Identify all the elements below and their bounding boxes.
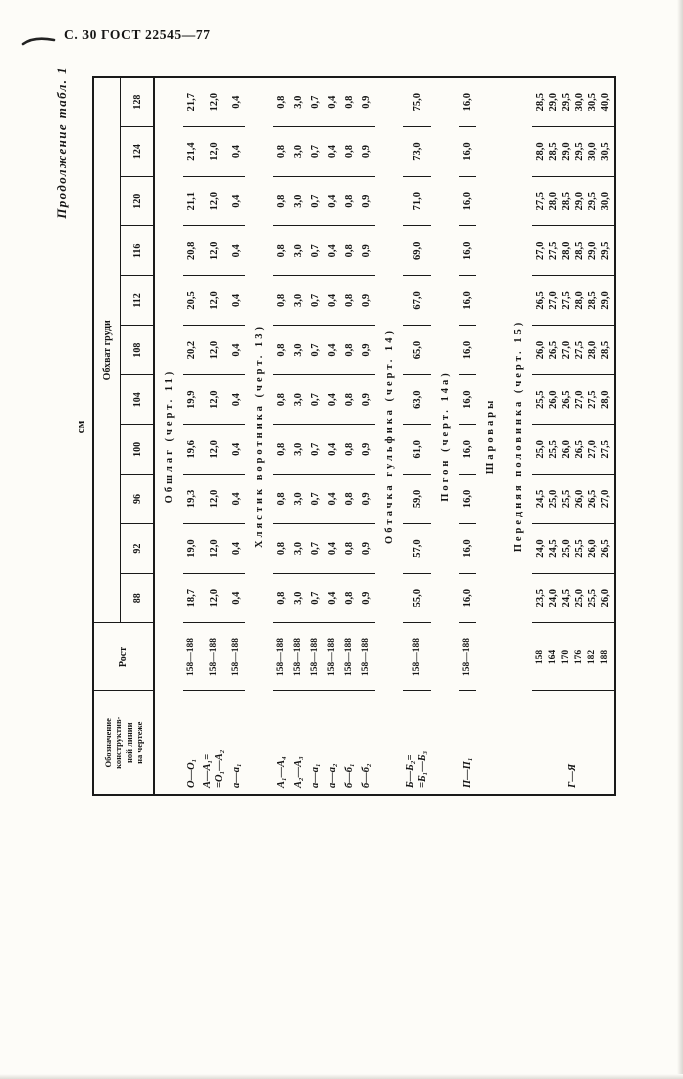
text-line: 0,9: [360, 276, 373, 325]
text-line: 96: [132, 475, 143, 524]
text-line: 0,7: [309, 127, 322, 176]
text-line: Передняя половинка (черт. 15): [513, 78, 524, 794]
text-line: 12,0: [208, 227, 221, 276]
text-line: 27,5: [560, 276, 573, 325]
value-cell: 12,0: [200, 474, 228, 524]
text-line: 3,0: [292, 524, 305, 573]
text-line: 16,0: [461, 326, 474, 375]
text-line: 128: [132, 78, 143, 126]
text-line: 0,9: [360, 375, 373, 424]
section-title-row: Передняя половинка (черт. 15): [504, 77, 532, 795]
text-line: 3,0: [292, 326, 305, 375]
text-line: 3,0: [292, 177, 305, 226]
value-cell: 0,8: [273, 573, 290, 623]
text-line: 0,4: [230, 574, 243, 623]
value-cell: 71,0: [403, 176, 431, 226]
designation-cell: б—б₁: [341, 691, 358, 795]
text-line: 30,0: [573, 78, 586, 126]
page-header: С. 30 ГОСТ 22545—77: [64, 27, 211, 43]
text-line: 158: [534, 624, 547, 691]
value-cell: 3,0: [290, 127, 307, 177]
value-cell: 73,0: [403, 127, 431, 177]
text-line: 29,0: [560, 127, 573, 176]
value-cell: 0,4: [324, 176, 341, 226]
value-cell: 69,0: [403, 226, 431, 276]
section-title-row: Обтачка гульфика (черт. 14): [375, 77, 403, 795]
designation-cell: А₂—А₃: [290, 691, 307, 795]
text-line: 158—188: [230, 624, 243, 691]
section-title: Передняя половинка (черт. 15): [504, 77, 532, 795]
text-line: 29,0: [547, 78, 560, 126]
text-line: 25,0: [560, 524, 573, 573]
text-line: 23,5: [534, 574, 547, 623]
value-cell: 3,0: [290, 573, 307, 623]
value-cell: 24,024,525,025,526,026,5: [532, 524, 615, 574]
table-row: а—а₂158—1880,40,40,40,40,40,40,40,40,40,…: [324, 77, 341, 795]
value-cell: 0,7: [307, 524, 324, 574]
text-line: а—а₁: [231, 692, 243, 789]
text-line: 0,8: [343, 78, 356, 126]
rost-cell: 158—188: [228, 623, 245, 691]
table-row: б—б₂158—1880,90,90,90,90,90,90,90,90,90,…: [358, 77, 375, 795]
text-line: 26,0: [560, 425, 573, 474]
text-line: 0,8: [275, 375, 288, 424]
text-line: 0,8: [275, 78, 288, 126]
value-cell: 0,7: [307, 474, 324, 524]
value-cell: 19,0: [183, 524, 200, 574]
text-line: 3,0: [292, 78, 305, 126]
text-line: 0,7: [309, 177, 322, 226]
value-cell: 20,2: [183, 325, 200, 375]
text-line: 0,7: [309, 375, 322, 424]
text-line: 12,0: [208, 574, 221, 623]
text-line: 25,0: [547, 475, 560, 524]
text-line: 12,0: [208, 127, 221, 176]
value-cell: 3,0: [290, 176, 307, 226]
text-line: Шаровары: [485, 78, 496, 794]
text-line: 0,4: [230, 524, 243, 573]
text-line: Г—Я: [567, 692, 579, 789]
text-line: 0,4: [230, 127, 243, 176]
rost-cell: 158164170176182188: [532, 623, 615, 691]
value-cell: 0,8: [341, 573, 358, 623]
text-line: 20,5: [185, 276, 198, 325]
value-cell: 19,3: [183, 474, 200, 524]
text-line: 0,4: [326, 177, 339, 226]
value-cell: 67,0: [403, 276, 431, 326]
text-line: 28,0: [573, 276, 586, 325]
text-line: 104: [132, 375, 143, 424]
designation-cell: а—а₂: [324, 691, 341, 795]
text-line: 29,5: [573, 127, 586, 176]
text-line: 25,5: [586, 574, 599, 623]
text-line: 63,0: [411, 375, 424, 424]
section-title-row: Обшлаг (черт. 11): [154, 77, 183, 795]
text-line: 29,0: [573, 177, 586, 226]
text-line: 158—188: [185, 624, 198, 691]
table-row: А₂—А₃158—1883,03,03,03,03,03,03,03,03,03…: [290, 77, 307, 795]
designation-cell: а—а₁: [307, 691, 324, 795]
section-title: Хлястик воротника (черт. 13): [245, 77, 273, 795]
text-line: 0,9: [360, 326, 373, 375]
text-line: 0,4: [230, 177, 243, 226]
text-line: 0,8: [343, 475, 356, 524]
value-cell: 0,8: [273, 226, 290, 276]
text-line: конструктив-: [113, 692, 124, 795]
value-cell: 23,524,024,525,025,526,0: [532, 573, 615, 623]
value-cell: 12,0: [200, 524, 228, 574]
table-row: а—а₁158—1880,70,70,70,70,70,70,70,70,70,…: [307, 77, 324, 795]
text-line: 12,0: [208, 425, 221, 474]
text-line: 0,9: [360, 425, 373, 474]
text-line: 0,8: [275, 574, 288, 623]
chest-girth-span-header: Обхват груди: [93, 77, 121, 623]
value-cell: 16,0: [459, 524, 476, 574]
value-cell: 61,0: [403, 425, 431, 475]
value-cell: 0,8: [341, 127, 358, 177]
text-line: 26,0: [534, 326, 547, 375]
rost-cell: 158—188: [290, 623, 307, 691]
text-line: 28,0: [586, 326, 599, 375]
size-column-header: 120: [121, 176, 155, 226]
text-line: 26,0: [599, 574, 612, 623]
text-line: 16,0: [461, 524, 474, 573]
text-line: 12,0: [208, 375, 221, 424]
text-line: 0,8: [343, 574, 356, 623]
text-line: 0,8: [275, 276, 288, 325]
text-line: 0,8: [275, 425, 288, 474]
value-cell: 16,0: [459, 276, 476, 326]
value-cell: 0,4: [324, 573, 341, 623]
text-line: 158—188: [461, 624, 474, 691]
size-column-header: 88: [121, 573, 155, 623]
text-line: 16,0: [461, 78, 474, 126]
text-line: 27,0: [599, 475, 612, 524]
rost-cell: 158—188: [324, 623, 341, 691]
text-line: 28,5: [534, 78, 547, 126]
text-line: 0,9: [360, 78, 373, 126]
text-line: Хлястик воротника (черт. 13): [254, 78, 265, 794]
text-line: 16,0: [461, 425, 474, 474]
scan-edge-shadow: [0, 1074, 683, 1079]
text-line: 164: [547, 624, 560, 691]
text-line: 69,0: [411, 227, 424, 276]
value-cell: 0,7: [307, 226, 324, 276]
rost-cell: 158—188: [273, 623, 290, 691]
text-line: 16,0: [461, 227, 474, 276]
text-line: 16,0: [461, 475, 474, 524]
value-cell: 0,8: [341, 77, 358, 127]
text-line: 158—188: [309, 624, 322, 691]
value-cell: 28,028,529,029,530,030,5: [532, 127, 615, 177]
table-row: а—а₁158—1880,40,40,40,40,40,40,40,40,40,…: [228, 77, 245, 795]
text-line: 0,4: [230, 326, 243, 375]
size-column-header: 112: [121, 276, 155, 326]
text-line: =Б₁—Б₃: [417, 692, 429, 789]
text-line: 0,4: [230, 475, 243, 524]
value-cell: 0,9: [358, 573, 375, 623]
value-cell: 16,0: [459, 474, 476, 524]
text-line: 120: [132, 177, 143, 226]
text-line: 0,4: [326, 326, 339, 375]
text-line: 73,0: [411, 127, 424, 176]
text-line: 19,9: [185, 375, 198, 424]
value-cell: 0,9: [358, 127, 375, 177]
text-line: 25,0: [534, 425, 547, 474]
text-line: 0,8: [275, 524, 288, 573]
designation-cell: Б—Б₂==Б₁—Б₃: [403, 691, 431, 795]
value-cell: 0,4: [324, 226, 341, 276]
text-line: 158—188: [326, 624, 339, 691]
value-cell: 16,0: [459, 226, 476, 276]
text-line: 12,0: [208, 276, 221, 325]
text-line: 112: [132, 276, 143, 325]
text-line: 21,1: [185, 177, 198, 226]
value-cell: 55,0: [403, 573, 431, 623]
text-line: 3,0: [292, 475, 305, 524]
text-line: 75,0: [411, 78, 424, 126]
rost-cell: 158—188: [307, 623, 324, 691]
designation-cell: б—б₂: [358, 691, 375, 795]
text-line: на чертеже: [134, 692, 145, 795]
value-cell: 0,4: [228, 77, 245, 127]
text-line: 27,5: [534, 177, 547, 226]
text-line: 28,5: [586, 276, 599, 325]
rost-cell: 158—188: [200, 623, 228, 691]
value-cell: 0,4: [324, 276, 341, 326]
text-line: 3,0: [292, 127, 305, 176]
text-line: 27,5: [599, 425, 612, 474]
text-line: Обхват груди: [102, 78, 113, 623]
text-line: 28,5: [599, 326, 612, 375]
measurements-table: Обозначениеконструктив-ной линиина черте…: [92, 76, 616, 796]
value-cell: 0,8: [273, 325, 290, 375]
value-cell: 3,0: [290, 325, 307, 375]
text-line: 0,4: [230, 375, 243, 424]
text-line: 182: [586, 624, 599, 691]
size-column-header: 104: [121, 375, 155, 425]
text-line: Обозначение: [103, 692, 114, 795]
text-line: 0,4: [326, 227, 339, 276]
value-cell: 0,4: [228, 226, 245, 276]
text-line: П—П₁: [462, 692, 474, 789]
section-title: Обшлаг (черт. 11): [154, 77, 183, 795]
value-cell: 0,9: [358, 524, 375, 574]
value-cell: 0,9: [358, 226, 375, 276]
text-line: 0,8: [343, 227, 356, 276]
designation-cell: А₁—А₄: [273, 691, 290, 795]
text-line: 124: [132, 127, 143, 176]
text-line: 0,7: [309, 227, 322, 276]
value-cell: 27,528,028,529,029,530,0: [532, 176, 615, 226]
designation-column-header: Обозначениеконструктив-ной линиина черте…: [93, 691, 154, 795]
text-line: 30,5: [599, 127, 612, 176]
value-cell: 0,9: [358, 325, 375, 375]
value-cell: 19,6: [183, 425, 200, 475]
value-cell: 0,8: [273, 474, 290, 524]
text-line: 88: [132, 574, 143, 623]
text-line: 158—188: [275, 624, 288, 691]
section-title-row: Хлястик воротника (черт. 13): [245, 77, 273, 795]
value-cell: 0,7: [307, 127, 324, 177]
document-page: С. 30 ГОСТ 22545—77 Продолжение табл. 1 …: [0, 0, 683, 1079]
value-cell: 0,4: [324, 474, 341, 524]
text-line: 0,4: [326, 425, 339, 474]
text-line: 27,0: [560, 326, 573, 375]
text-line: 12,0: [208, 475, 221, 524]
text-line: 158—188: [411, 624, 424, 691]
value-cell: 0,8: [273, 524, 290, 574]
text-line: 16,0: [461, 574, 474, 623]
value-cell: 3,0: [290, 425, 307, 475]
text-line: 0,8: [343, 177, 356, 226]
value-cell: 0,8: [341, 425, 358, 475]
text-line: 16,0: [461, 276, 474, 325]
value-cell: 28,529,029,530,030,540,0: [532, 77, 615, 127]
table-header-row: Обозначениеконструктив-ной линиина черте…: [93, 77, 121, 795]
value-cell: 3,0: [290, 375, 307, 425]
text-line: Погон (черт. 14а): [440, 78, 451, 794]
value-cell: 65,0: [403, 325, 431, 375]
pen-mark-icon: [20, 34, 58, 48]
text-line: А₂—А₃: [293, 692, 305, 789]
text-line: 30,0: [586, 127, 599, 176]
text-line: 0,4: [326, 276, 339, 325]
value-cell: 18,7: [183, 573, 200, 623]
text-line: 0,7: [309, 574, 322, 623]
text-line: 116: [132, 227, 143, 276]
text-line: 27,0: [547, 276, 560, 325]
text-line: 25,5: [573, 524, 586, 573]
text-line: 30,0: [599, 177, 612, 226]
value-cell: 12,0: [200, 325, 228, 375]
text-line: а—а₁: [310, 692, 322, 789]
text-line: 24,5: [534, 475, 547, 524]
designation-cell: Г—Я: [532, 691, 615, 795]
value-cell: 0,4: [324, 375, 341, 425]
value-cell: 3,0: [290, 226, 307, 276]
text-line: 19,0: [185, 524, 198, 573]
text-line: 0,9: [360, 227, 373, 276]
value-cell: 0,8: [341, 176, 358, 226]
text-line: 12,0: [208, 524, 221, 573]
text-line: 40,0: [599, 78, 612, 126]
value-cell: 0,4: [324, 77, 341, 127]
value-cell: 0,4: [324, 127, 341, 177]
value-cell: 24,525,025,526,026,527,0: [532, 474, 615, 524]
value-cell: 21,4: [183, 127, 200, 177]
text-line: 0,9: [360, 127, 373, 176]
text-line: 26,5: [573, 425, 586, 474]
text-line: 0,4: [326, 78, 339, 126]
text-line: 0,9: [360, 574, 373, 623]
value-cell: 0,9: [358, 77, 375, 127]
text-line: 3,0: [292, 574, 305, 623]
value-cell: 0,4: [228, 127, 245, 177]
text-line: 16,0: [461, 177, 474, 226]
text-line: 28,5: [547, 127, 560, 176]
text-line: 26,5: [560, 375, 573, 424]
value-cell: 19,9: [183, 375, 200, 425]
text-line: 0,4: [230, 227, 243, 276]
text-line: 27,5: [586, 375, 599, 424]
text-line: Рост: [118, 624, 129, 691]
value-cell: 0,8: [273, 77, 290, 127]
value-cell: 0,9: [358, 176, 375, 226]
text-line: 0,8: [275, 475, 288, 524]
value-cell: 57,0: [403, 524, 431, 574]
text-line: 24,0: [547, 574, 560, 623]
text-line: 0,4: [326, 475, 339, 524]
text-line: 0,8: [275, 177, 288, 226]
value-cell: 0,8: [341, 474, 358, 524]
designation-cell: А—А₁==О₁—А₂: [200, 691, 228, 795]
text-line: 18,7: [185, 574, 198, 623]
value-cell: 0,8: [273, 127, 290, 177]
text-line: 26,0: [586, 524, 599, 573]
text-line: 0,8: [343, 127, 356, 176]
value-cell: 0,4: [324, 325, 341, 375]
text-line: 61,0: [411, 425, 424, 474]
value-cell: 12,0: [200, 77, 228, 127]
value-cell: 26,026,527,027,528,028,5: [532, 325, 615, 375]
text-line: 0,4: [230, 425, 243, 474]
text-line: 30,5: [586, 78, 599, 126]
text-line: 158—188: [343, 624, 356, 691]
value-cell: 0,9: [358, 276, 375, 326]
size-column-header: 96: [121, 474, 155, 524]
value-cell: 12,0: [200, 425, 228, 475]
text-line: 12,0: [208, 326, 221, 375]
value-cell: 0,4: [228, 573, 245, 623]
text-line: 24,5: [560, 574, 573, 623]
value-cell: 0,8: [273, 176, 290, 226]
value-cell: 27,027,528,028,529,029,5: [532, 226, 615, 276]
text-line: 28,0: [547, 177, 560, 226]
text-line: 0,8: [275, 227, 288, 276]
text-line: 158—188: [360, 624, 373, 691]
text-line: 20,8: [185, 227, 198, 276]
text-line: 3,0: [292, 375, 305, 424]
size-column-header: 116: [121, 226, 155, 276]
text-line: 170: [560, 624, 573, 691]
rost-cell: 158—188: [183, 623, 200, 691]
size-column-header: 108: [121, 325, 155, 375]
section-title: Шаровары: [476, 77, 504, 795]
designation-cell: О—О₁: [183, 691, 200, 795]
text-line: 28,5: [560, 177, 573, 226]
text-line: 25,5: [547, 425, 560, 474]
table-row: П—П₁158—18816,016,016,016,016,016,016,01…: [459, 77, 476, 795]
value-cell: 0,9: [358, 474, 375, 524]
value-cell: 16,0: [459, 425, 476, 475]
text-line: 12,0: [208, 177, 221, 226]
text-line: а—а₂: [327, 692, 339, 789]
section-title-row: Погон (черт. 14а): [431, 77, 459, 795]
value-cell: 0,8: [273, 276, 290, 326]
value-cell: 12,0: [200, 176, 228, 226]
text-line: 27,5: [547, 227, 560, 276]
text-line: 92: [132, 524, 143, 573]
text-line: 16,0: [461, 375, 474, 424]
text-line: 0,4: [326, 524, 339, 573]
text-line: 29,0: [586, 227, 599, 276]
text-line: 0,7: [309, 78, 322, 126]
value-cell: 0,8: [341, 325, 358, 375]
value-cell: 3,0: [290, 474, 307, 524]
value-cell: 0,8: [341, 226, 358, 276]
text-line: 0,4: [326, 127, 339, 176]
